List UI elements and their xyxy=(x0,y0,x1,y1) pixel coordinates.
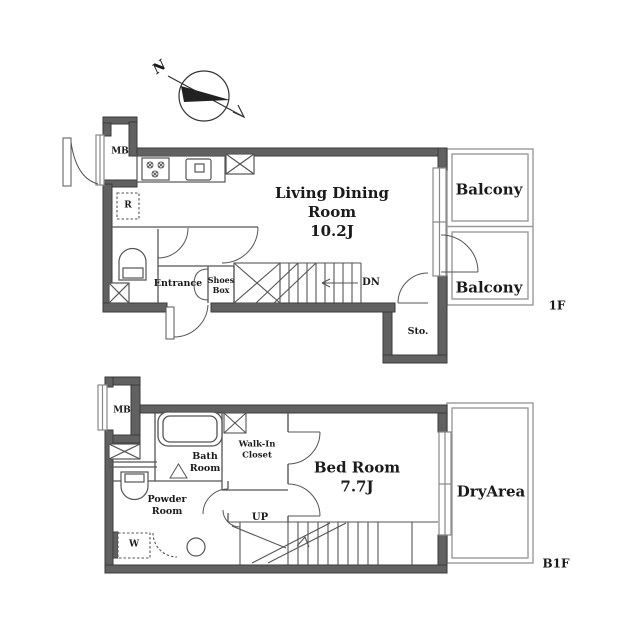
sink-icon xyxy=(186,159,211,180)
kitchen-counter xyxy=(137,156,225,182)
bathtub-icon xyxy=(158,412,222,446)
meter-box-door-1f xyxy=(63,138,98,186)
balcony-upper-label: Balcony xyxy=(456,181,523,200)
entrance-door-1f xyxy=(166,305,208,339)
hall-stairs-door xyxy=(223,510,240,527)
refrigerator-label: R xyxy=(124,200,131,211)
stairs-up-label: UP xyxy=(252,512,268,525)
floorplan-page: N MB R Living Dining Room 10.2J Balcony … xyxy=(0,0,640,640)
stairs-down-label: DN xyxy=(362,277,380,290)
walk-in-closet-label: Walk-In Closet xyxy=(230,439,284,460)
floor-label-b1f: B1F xyxy=(542,557,569,572)
dry-area-label: DryArea xyxy=(457,483,525,502)
washer-box xyxy=(118,533,177,558)
bed-room-label: Bed Room 7.7J xyxy=(302,458,412,496)
floor-label-1f: 1F xyxy=(549,299,566,314)
kitchen-hatch-box xyxy=(226,154,254,174)
basin-icon xyxy=(187,538,205,556)
meter-box-label-b1f: MB xyxy=(113,405,131,416)
powder-room-door xyxy=(203,489,228,514)
powder-room-label: Powder Room xyxy=(138,494,196,518)
entrance-label: Entrance xyxy=(154,278,202,290)
shaft-box-1f xyxy=(109,283,129,303)
stairs-1f xyxy=(234,263,361,303)
living-dining-room-label: Living Dining Room 10.2J xyxy=(266,184,398,240)
shoes-box-label: Shoes Box xyxy=(203,275,239,295)
meter-box-label-1f: MB xyxy=(111,146,129,157)
stairs-b1f xyxy=(228,522,438,565)
door-storage-1f xyxy=(398,273,428,303)
compass-icon xyxy=(168,71,244,121)
floorplan-drawing xyxy=(0,0,640,640)
toilet-icon-1f xyxy=(119,249,146,281)
shaft-box-b1f xyxy=(109,444,140,459)
storage-label: Sto. xyxy=(408,326,429,338)
washer-label: W xyxy=(129,539,139,550)
bath-room-label: Bath Room xyxy=(183,451,227,475)
balcony-lower-label: Balcony xyxy=(456,279,523,298)
closet-hatch-box xyxy=(224,413,246,433)
